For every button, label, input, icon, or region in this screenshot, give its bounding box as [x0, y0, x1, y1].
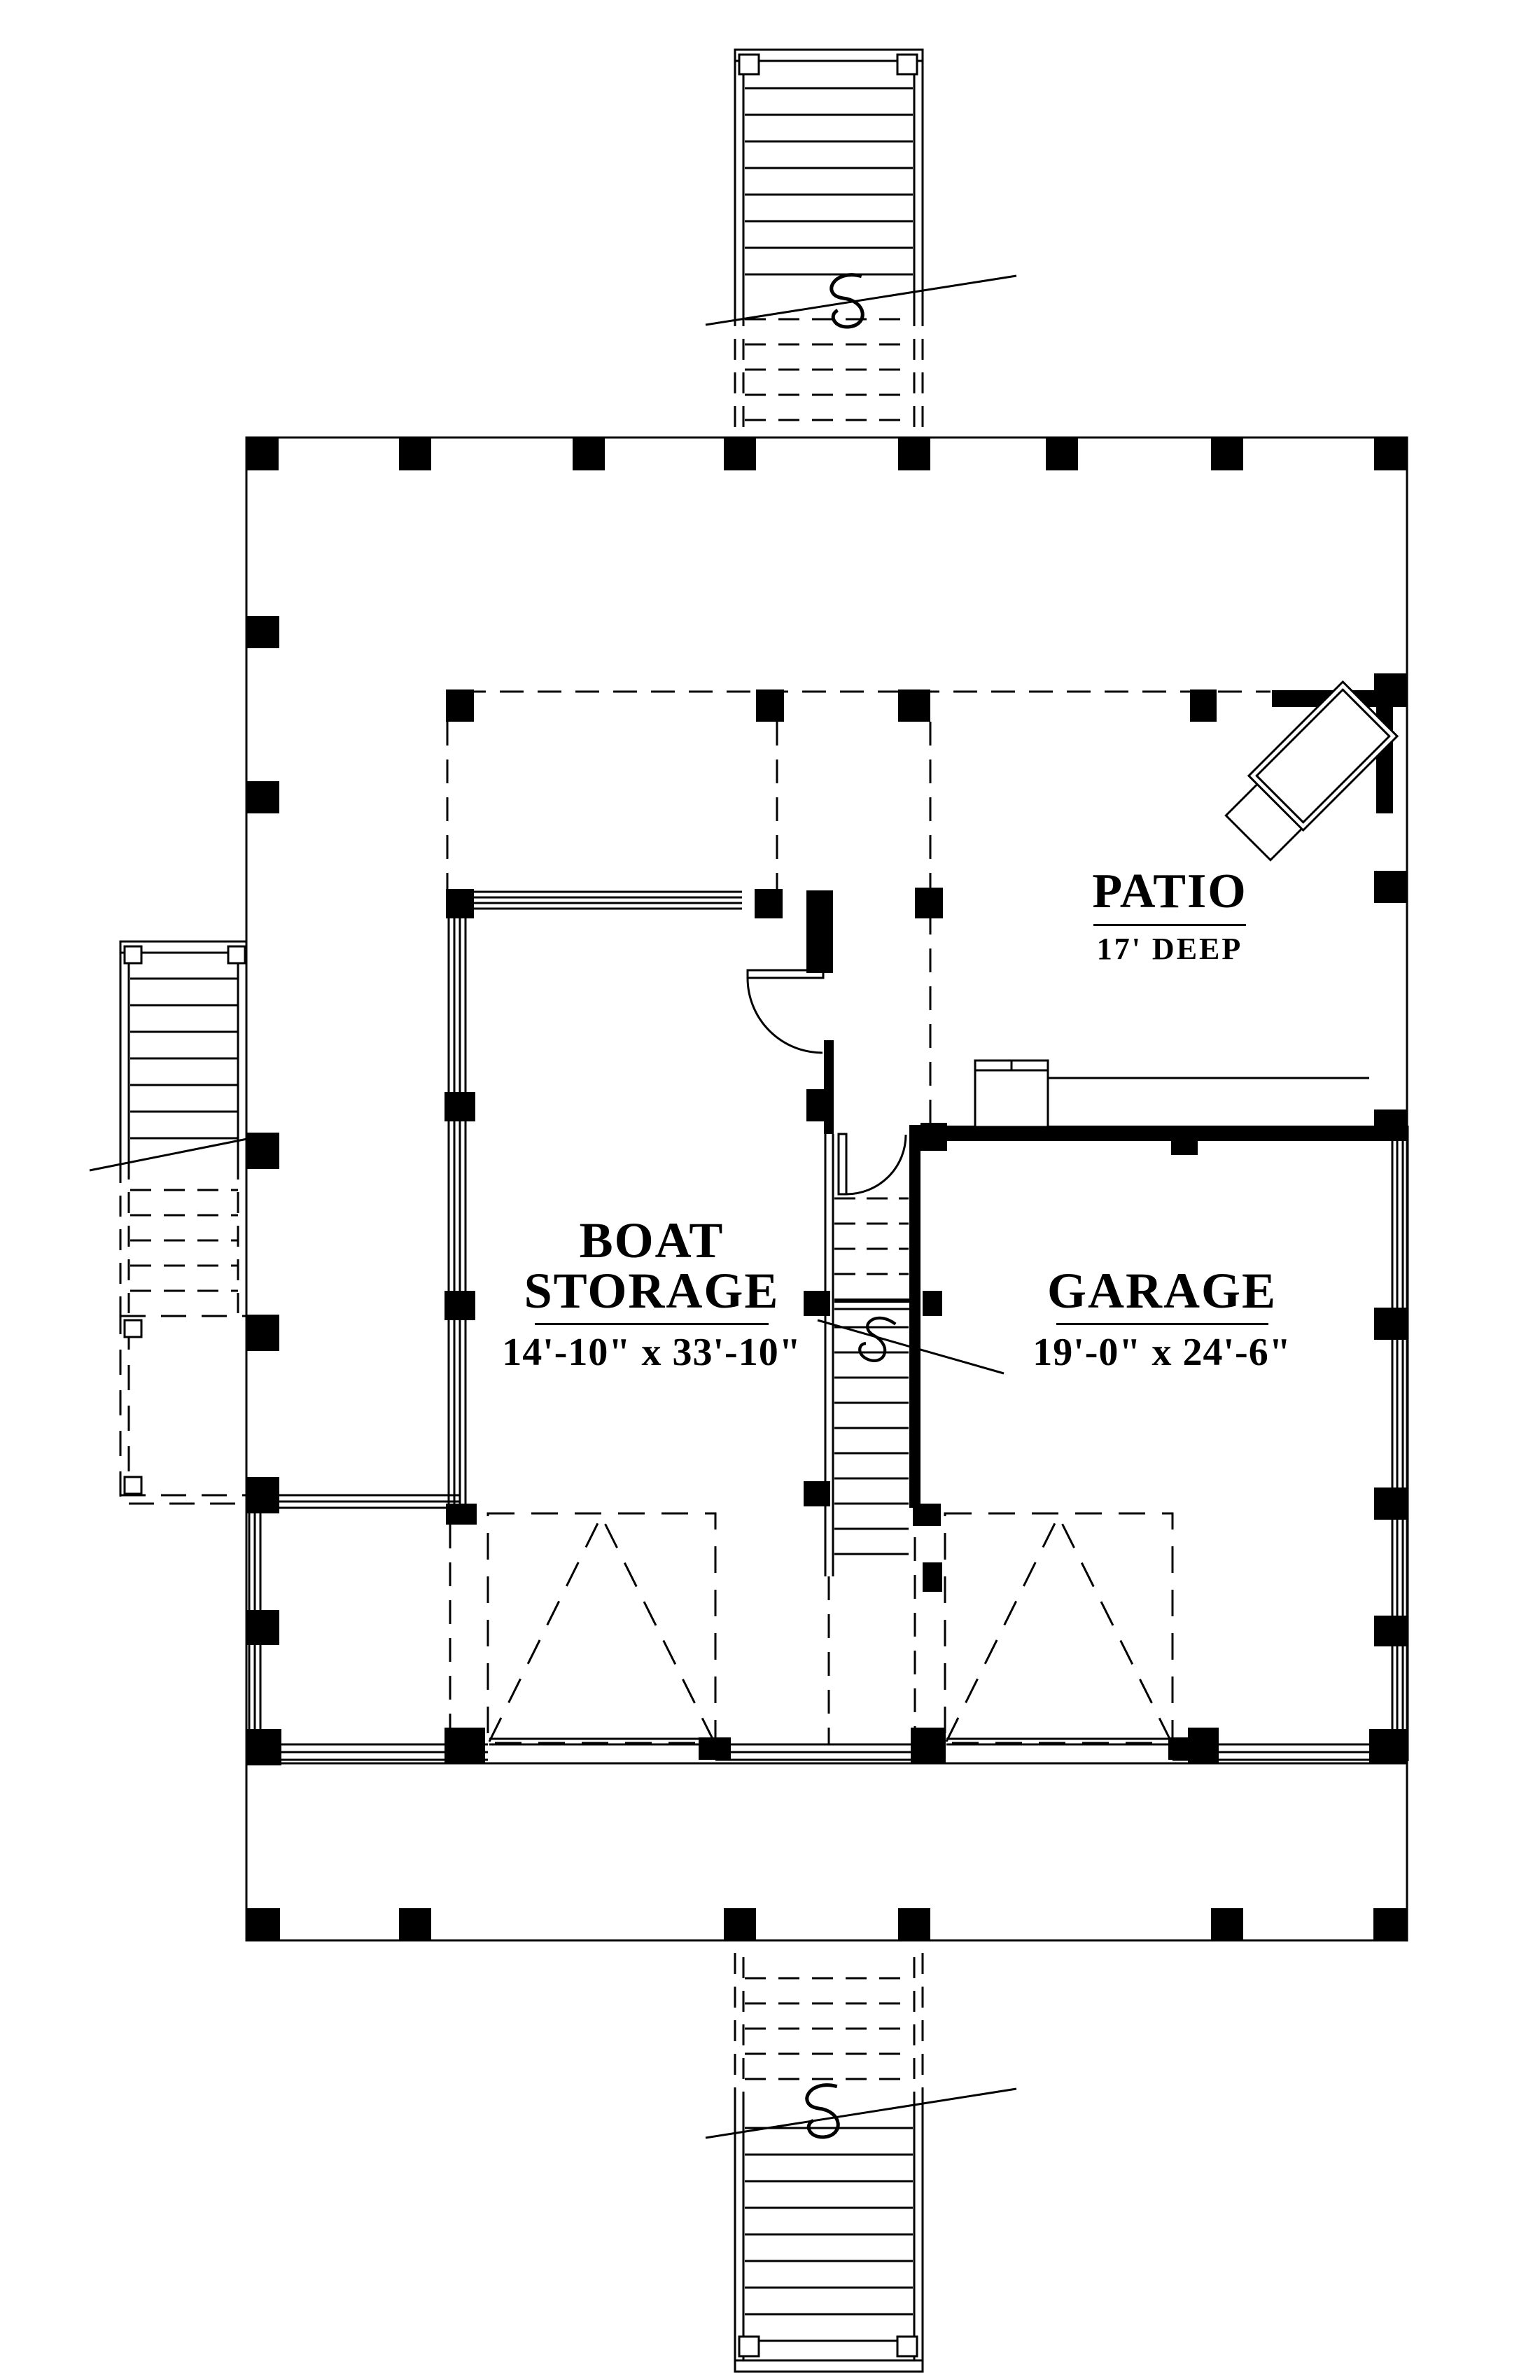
stair-hall-door — [839, 1134, 906, 1194]
label-underline — [1093, 924, 1246, 926]
boat-storage-door — [748, 970, 823, 1053]
column-posts — [246, 438, 1408, 1940]
floor-plan-page: BOAT STORAGE 14'-10" x 33'-10" GARAGE 19… — [0, 0, 1540, 2380]
room-label-patio: PATIO 17' DEEP — [960, 867, 1380, 965]
room-name: PATIO — [960, 867, 1380, 917]
grill-counter — [975, 1060, 1369, 1127]
deck-boundary — [246, 437, 1407, 1940]
garage-door-left — [488, 1513, 715, 1744]
room-dimensions: 17' DEEP — [960, 933, 1380, 965]
s-break-icon — [826, 273, 869, 330]
floor-plan-drawing — [0, 0, 1540, 2380]
patio-fireplace — [1226, 682, 1397, 860]
room-label-boat-storage: BOAT STORAGE 14'-10" x 33'-10" — [442, 1215, 862, 1373]
left-stairs — [90, 941, 258, 1506]
s-break-icon — [801, 2083, 845, 2140]
room-dimensions: 19'-0" x 24'-6" — [952, 1332, 1372, 1373]
label-underline — [1056, 1323, 1268, 1325]
room-name: GARAGE — [952, 1266, 1372, 1316]
s-break-icon — [858, 1315, 897, 1364]
label-underline — [535, 1323, 769, 1325]
thick-walls — [806, 890, 1407, 1508]
room-dimensions: 14'-10" x 33'-10" — [442, 1332, 862, 1373]
bottom-stairs — [706, 1953, 1016, 2372]
room-label-garage: GARAGE 19'-0" x 24'-6" — [952, 1266, 1372, 1373]
room-name: BOAT STORAGE — [505, 1215, 799, 1316]
top-stairs — [706, 50, 1016, 437]
garage-door-right — [945, 1513, 1172, 1744]
